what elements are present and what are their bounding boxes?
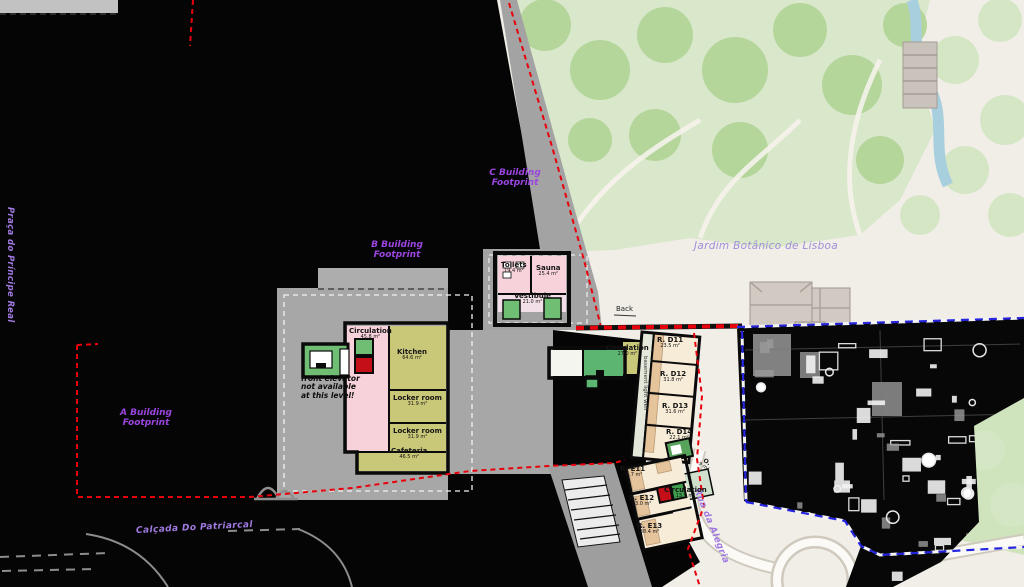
room-label: Circulation13.9 m² — [664, 487, 707, 500]
room-label: R. E1338.4 m² — [637, 523, 662, 536]
room-label: Kitchen64.6 m² — [397, 349, 427, 362]
room-label: R. D1231.8 m² — [660, 371, 686, 384]
garden-label: Jardim Botânico de Lisboa — [694, 241, 838, 252]
stairs-path-icon — [903, 42, 937, 108]
site-plan-drawing — [0, 0, 1024, 587]
room-label: Toilets19.4 m² — [501, 262, 527, 275]
room-label: Locker room31.9 m² — [393, 428, 442, 441]
street-label-left: Praça do Príncipe Real — [5, 207, 14, 323]
room-label: Locker room31.9 m² — [393, 395, 442, 408]
room-label: R. E1121.7 m² — [620, 466, 645, 479]
room-label: R. D1331.6 m² — [662, 403, 688, 416]
room-label: Vestibule21.0 m² — [514, 293, 551, 306]
light-well-label: basement light well — [641, 356, 647, 410]
room-label: R. E1223.0 m² — [629, 495, 654, 508]
room-label: R. D1422.1 m² — [666, 429, 692, 442]
front-elevator — [355, 357, 373, 373]
room-label: Circulation27.0 m² — [606, 345, 649, 358]
stair-core — [355, 339, 373, 355]
room-label: Circulation45.8 m² — [349, 328, 392, 341]
room-label: R. D1123.5 m² — [657, 337, 683, 350]
footprint-label-a: A Building Footprint — [116, 408, 176, 429]
room-label: Cafeteria46.5 m² — [391, 448, 427, 461]
footprint-label-b: B Building Footprint — [366, 240, 428, 261]
back-gate-label: Back — [616, 306, 633, 313]
site-plan-canvas: Praça do Príncipe Real Jardim Botânico d… — [0, 0, 1024, 587]
elevator-note: front elevator not available at this lev… — [301, 375, 363, 400]
room-label: Sauna25.4 m² — [536, 265, 560, 278]
footprint-label-c: C Building Footprint — [484, 168, 546, 189]
